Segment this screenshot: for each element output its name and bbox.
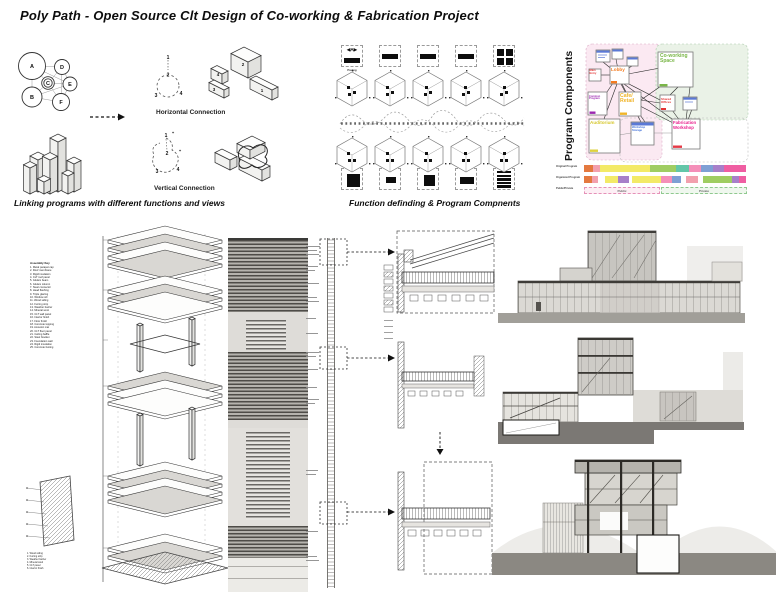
- hconn-node-3: 3: [155, 93, 158, 99]
- cube-dot: [428, 136, 429, 137]
- axon-post: [137, 415, 140, 467]
- wall-section-ladder: [300, 228, 400, 598]
- program-bar-segment: [650, 165, 676, 172]
- axon-post: [140, 325, 143, 373]
- ground-band: [498, 313, 745, 323]
- hconn-node-2: 2: [167, 73, 170, 79]
- vertical-connection-diagram: 1 2 3 4 + +: [145, 128, 195, 184]
- mid-step-mass: [560, 268, 592, 281]
- wing-roofline: [518, 281, 740, 283]
- axon-post: [192, 409, 195, 461]
- detail2-clt: [402, 384, 474, 388]
- plan-bar: [420, 54, 436, 59]
- detail-callout: [320, 347, 347, 369]
- cube-glyph: [386, 93, 389, 96]
- right-arrow-icon: [388, 249, 395, 256]
- assembly-legend-list: 1. Metal parapet cap 2. Roof membrane 3.…: [30, 266, 102, 350]
- down-arrow-icon: [437, 449, 444, 455]
- building-section-render-1: [490, 226, 776, 334]
- detail3-wall: [398, 472, 404, 570]
- program-bar-segment: [584, 165, 593, 172]
- program-components-title: Program Components: [563, 39, 575, 161]
- detail1-ridge: [404, 250, 413, 262]
- annotation-mark: [306, 318, 316, 319]
- elevation-base-band: [228, 558, 308, 592]
- layer-key-swatch: [384, 265, 393, 270]
- cube-dot: [369, 97, 370, 98]
- massing-blocks-diagram: [14, 126, 106, 200]
- vconn-node-3: 3: [156, 169, 159, 175]
- cube-glyph: [429, 159, 432, 162]
- cube-dot: [352, 70, 353, 71]
- program-bar-segment: [701, 165, 713, 172]
- vertical-connection-blob: [196, 128, 306, 190]
- program-bar-segment: [618, 176, 629, 183]
- plan-square: [506, 49, 513, 56]
- public-bar: Public: [584, 187, 660, 194]
- hbox-num-3: 3: [213, 87, 216, 92]
- cube-glyph: [464, 86, 467, 89]
- horizontal-connection-diagram: 1 2 3 4: [145, 46, 195, 104]
- cube-glyph: [467, 159, 470, 162]
- flow-arrow-icon: [88, 112, 128, 122]
- program-label-cafe: Cafe/ Retail: [620, 94, 640, 105]
- plan-bar: [344, 58, 360, 63]
- cube-glyph: [505, 91, 508, 94]
- cube-glyph: [386, 152, 389, 155]
- right-mid-mullions: [660, 392, 696, 421]
- plan-square: [497, 58, 504, 65]
- tower-roofline: [575, 460, 681, 462]
- cube-glyph: [462, 159, 465, 162]
- plan-square: [386, 177, 396, 183]
- entry-mark: [536, 302, 541, 311]
- cube-glyph: [429, 91, 432, 94]
- cube-dot: [352, 136, 353, 137]
- program-label-coworking: Co-working Space: [660, 54, 691, 65]
- annotation-mark: [306, 352, 319, 353]
- elevation-band: [228, 526, 308, 558]
- cube-glyph: [424, 159, 427, 162]
- cube-dot: [487, 97, 488, 98]
- axon-post: [189, 319, 192, 367]
- program-bar-segment: [605, 176, 618, 183]
- function-cell-plan: [379, 45, 401, 67]
- function-cell-plan: [493, 45, 515, 67]
- annex-mass: [712, 262, 742, 281]
- right-arrow-icon: [388, 355, 395, 362]
- plan-stripe: [497, 178, 511, 180]
- annotation-mark: [306, 474, 316, 475]
- program-bar-segment: [593, 165, 600, 172]
- layer-key-mark: [384, 338, 393, 339]
- bubble-label-d: D: [60, 65, 64, 71]
- detail1-glazing: [410, 234, 494, 268]
- program-bar-segment: [676, 165, 689, 172]
- annotation-mark: [306, 246, 320, 247]
- annotation-mark: [306, 399, 319, 400]
- bubble-label-b: B: [30, 95, 34, 101]
- annotation-mark: [306, 333, 318, 334]
- cube-glyph: [348, 93, 351, 96]
- cube-dot: [411, 97, 412, 98]
- hbox-num-4: 4: [217, 72, 220, 77]
- bubble-label-a: A: [30, 64, 34, 70]
- plan-stripe: [497, 185, 511, 187]
- hbox-num-2: 2: [242, 62, 245, 67]
- elevation-band: [228, 318, 308, 352]
- bar-label-organized: Organized Program: [556, 176, 583, 179]
- cube-glyph: [391, 91, 394, 94]
- private-bar: Private: [661, 187, 747, 194]
- building-section-render-2: [490, 334, 776, 462]
- annotation-mark: [306, 403, 315, 404]
- annotation-mark: [306, 250, 317, 251]
- bar-label-pubpriv: Public/Private: [556, 187, 583, 190]
- building-section-render-3: [490, 452, 776, 600]
- program-bar-segment: [732, 176, 739, 183]
- hconn-node-1: 1: [167, 55, 170, 61]
- cube-dot: [521, 163, 522, 164]
- cube-dot: [373, 97, 374, 98]
- cube-glyph: [505, 159, 508, 162]
- cube-glyph: [500, 159, 503, 162]
- left-wing-mullions: [503, 392, 578, 422]
- basement-box: [503, 420, 559, 435]
- program-bar-segment: [672, 176, 681, 183]
- cube-dot: [407, 97, 408, 98]
- cube-glyph: [503, 86, 506, 89]
- program-bar-segment: [600, 165, 650, 172]
- linking-caption: Linking programs with different function…: [14, 198, 225, 208]
- cube-dot: [466, 136, 467, 137]
- cube-glyph: [503, 152, 506, 155]
- iso-block: [50, 156, 58, 194]
- vconn-node-4: 4: [177, 167, 180, 173]
- program-label-commons: Common Program: [589, 96, 606, 101]
- vconn-node-2: 2: [166, 151, 169, 157]
- cube-glyph: [348, 159, 351, 162]
- horizontal-connection-label: Horizontal Connection: [156, 109, 225, 116]
- detail1-joists: [410, 295, 488, 301]
- function-cubes: [337, 70, 529, 176]
- annotation-mark: [306, 369, 318, 370]
- cube-dot: [445, 97, 446, 98]
- program-bar-segment: [661, 176, 672, 183]
- program-label-fabrication: Fabrication Workshop: [673, 121, 699, 130]
- cube-dot: [483, 163, 484, 164]
- cell-a-marker: ◀A▶: [342, 47, 362, 53]
- layer-key-swatch: [384, 300, 393, 305]
- layer-key-swatch: [384, 307, 393, 312]
- bar-label-original: Original Program: [556, 165, 583, 168]
- annotation-mark: [306, 254, 319, 255]
- layer-key-mark: [384, 320, 393, 321]
- basement-box: [637, 535, 679, 573]
- ground-mass: [492, 553, 776, 575]
- axon-post: [137, 325, 140, 373]
- iso-block: [30, 165, 37, 194]
- background-building: [723, 352, 743, 392]
- detail1-deck: [402, 272, 494, 283]
- plan-bar: [382, 54, 398, 59]
- annotation-mark: [306, 297, 317, 298]
- annotation-mark: [306, 470, 318, 471]
- program-bar-segment: [592, 176, 598, 183]
- elevation-band: [228, 240, 308, 312]
- elevation-band: [228, 428, 308, 526]
- annotation-mark: [306, 531, 318, 532]
- wing-roofline: [503, 392, 578, 394]
- cube-dot: [390, 136, 391, 137]
- cube-dot: [445, 163, 446, 164]
- cube-dot: [521, 97, 522, 98]
- cube-glyph: [347, 152, 350, 155]
- elevation-window-panel: [246, 320, 286, 350]
- annotation-mark: [306, 266, 318, 267]
- cube-glyph: [347, 86, 350, 89]
- cube-dot: [335, 163, 336, 164]
- plan-square: [497, 49, 504, 56]
- detail1-clt: [402, 286, 494, 292]
- cube-glyph: [353, 159, 356, 162]
- vconn-plus-1: +: [172, 130, 175, 135]
- cube-glyph: [353, 91, 356, 94]
- cube-dot: [428, 70, 429, 71]
- bubble-label-e: E: [68, 82, 72, 88]
- detail3-joists: [408, 530, 481, 536]
- cube-glyph: [386, 159, 389, 162]
- cube-dot: [390, 70, 391, 71]
- layer-key-mark: [384, 332, 393, 333]
- function-cell-plan: [417, 45, 439, 67]
- vconn-node-1: 1: [165, 133, 168, 139]
- annotation-mark: [306, 283, 319, 284]
- tower-mullions: [588, 231, 656, 281]
- bubble-label-c: C: [46, 81, 50, 87]
- construction-details: [396, 228, 498, 578]
- axon-post: [189, 409, 192, 461]
- layer-key-swatch: [384, 272, 393, 277]
- layer-key-swatch: [384, 293, 393, 298]
- cube-dot: [449, 97, 450, 98]
- cube-dot: [335, 97, 336, 98]
- poster-board: Poly Path - Open Source Clt Design of Co…: [0, 0, 776, 600]
- program-bar-segment: [584, 176, 592, 183]
- cube-glyph: [462, 93, 465, 96]
- iso-block: [24, 165, 31, 194]
- layer-key-swatch: [384, 286, 393, 291]
- detail3-clt: [402, 522, 490, 527]
- program-label-storage: Workshop Storage: [632, 127, 653, 133]
- interior-shade: [600, 283, 660, 313]
- program-label-lobby: Lobby: [611, 68, 628, 73]
- function-cell-plan: ◀A▶: [341, 45, 363, 67]
- wall-detail-drawing: [24, 468, 106, 600]
- annotation-mark: [306, 556, 317, 557]
- void-space: [600, 512, 628, 530]
- cube-dot: [449, 163, 450, 164]
- elevation-window-panel: [246, 432, 290, 520]
- annotation-mark: [306, 356, 316, 357]
- plan-stripe: [497, 182, 511, 184]
- detail2-deck: [402, 372, 474, 381]
- detail3-deck: [402, 508, 490, 519]
- cube-glyph: [391, 159, 394, 162]
- horizontal-connection-axon-numbers: 2 4 3 1: [196, 42, 306, 108]
- wall-detail-dots: [26, 487, 28, 537]
- program-bar-segment: [724, 165, 746, 172]
- cube-glyph: [386, 86, 389, 89]
- plan-square: [460, 177, 474, 184]
- program-bar-segment: [713, 165, 724, 172]
- iso-block: [62, 173, 68, 194]
- cube-dot: [373, 163, 374, 164]
- cube-dot: [466, 70, 467, 71]
- cube-dot: [504, 136, 505, 137]
- iso-block: [74, 161, 81, 193]
- vertical-connection-label: Vertical Connection: [154, 185, 215, 192]
- program-bar-segment: [739, 176, 746, 183]
- elevation-band: [228, 420, 308, 428]
- cube-glyph: [425, 86, 428, 89]
- cube-dot: [411, 163, 412, 164]
- assembly-legend-title: Assembly Key: [30, 261, 50, 265]
- cube-glyph: [464, 152, 467, 155]
- annotation-mark: [306, 270, 315, 271]
- axon-post: [140, 415, 143, 467]
- plan-square: [506, 58, 513, 65]
- program-bar-segment: [703, 176, 732, 183]
- cube-glyph: [500, 93, 503, 96]
- hbox-num-1: 1: [261, 88, 264, 93]
- layer-key-swatch: [384, 279, 393, 284]
- cube-dot: [407, 163, 408, 164]
- plan-square: [424, 175, 435, 186]
- siding-elevation-drawing: [228, 238, 308, 592]
- elevation-band: [228, 352, 308, 420]
- function-cell-plan: [455, 45, 477, 67]
- cube-dot: [369, 163, 370, 164]
- exploded-axon-drawing: [100, 226, 232, 600]
- cube-dot: [504, 70, 505, 71]
- cube-dot: [487, 163, 488, 164]
- function-caption: Function definding & Program Compnents: [349, 198, 520, 208]
- annotation-mark: [306, 301, 319, 302]
- right-arrow-icon: [388, 509, 395, 516]
- program-bar-segment: [632, 176, 661, 183]
- iso-block: [68, 173, 74, 194]
- layer-key-mark: [384, 326, 393, 327]
- program-label-main-entry: Main Entry: [590, 70, 601, 76]
- annotation-mark: [306, 387, 317, 388]
- detail2-column: [474, 356, 484, 396]
- poster-title: Poly Path - Open Source Clt Design of Co…: [20, 8, 479, 23]
- cube-glyph: [424, 93, 427, 96]
- cube-dot: [483, 97, 484, 98]
- detail2-joists: [408, 391, 463, 396]
- cube-glyph: [425, 152, 428, 155]
- wall-detail-key: 1. Wood siding 2. Furring strip 3. Weath…: [27, 552, 89, 571]
- program-bar-segment: [686, 176, 698, 183]
- ground-band-right: [654, 422, 744, 430]
- hconn-node-4: 4: [180, 91, 183, 97]
- cube-glyph: [467, 91, 470, 94]
- plan-bar: [458, 54, 474, 59]
- program-bar-segment: [689, 165, 701, 172]
- program-label-auditorium: Auditorium: [590, 121, 619, 126]
- program-label-shared-offices: Shared Offices: [661, 98, 674, 104]
- annotation-mark: [306, 560, 319, 561]
- vconn-plus-2: +: [179, 148, 182, 153]
- tower-roofline: [588, 231, 656, 233]
